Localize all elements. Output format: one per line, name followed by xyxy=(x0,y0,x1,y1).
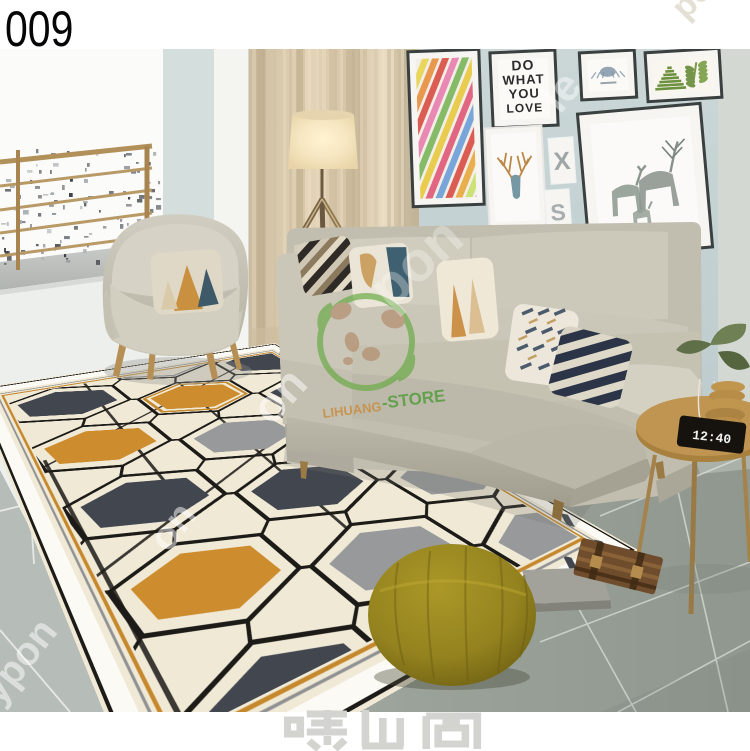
svg-text:on: on xyxy=(140,494,205,560)
svg-text:ypon: ypon xyxy=(0,610,66,712)
svg-text:le: le xyxy=(530,62,591,122)
